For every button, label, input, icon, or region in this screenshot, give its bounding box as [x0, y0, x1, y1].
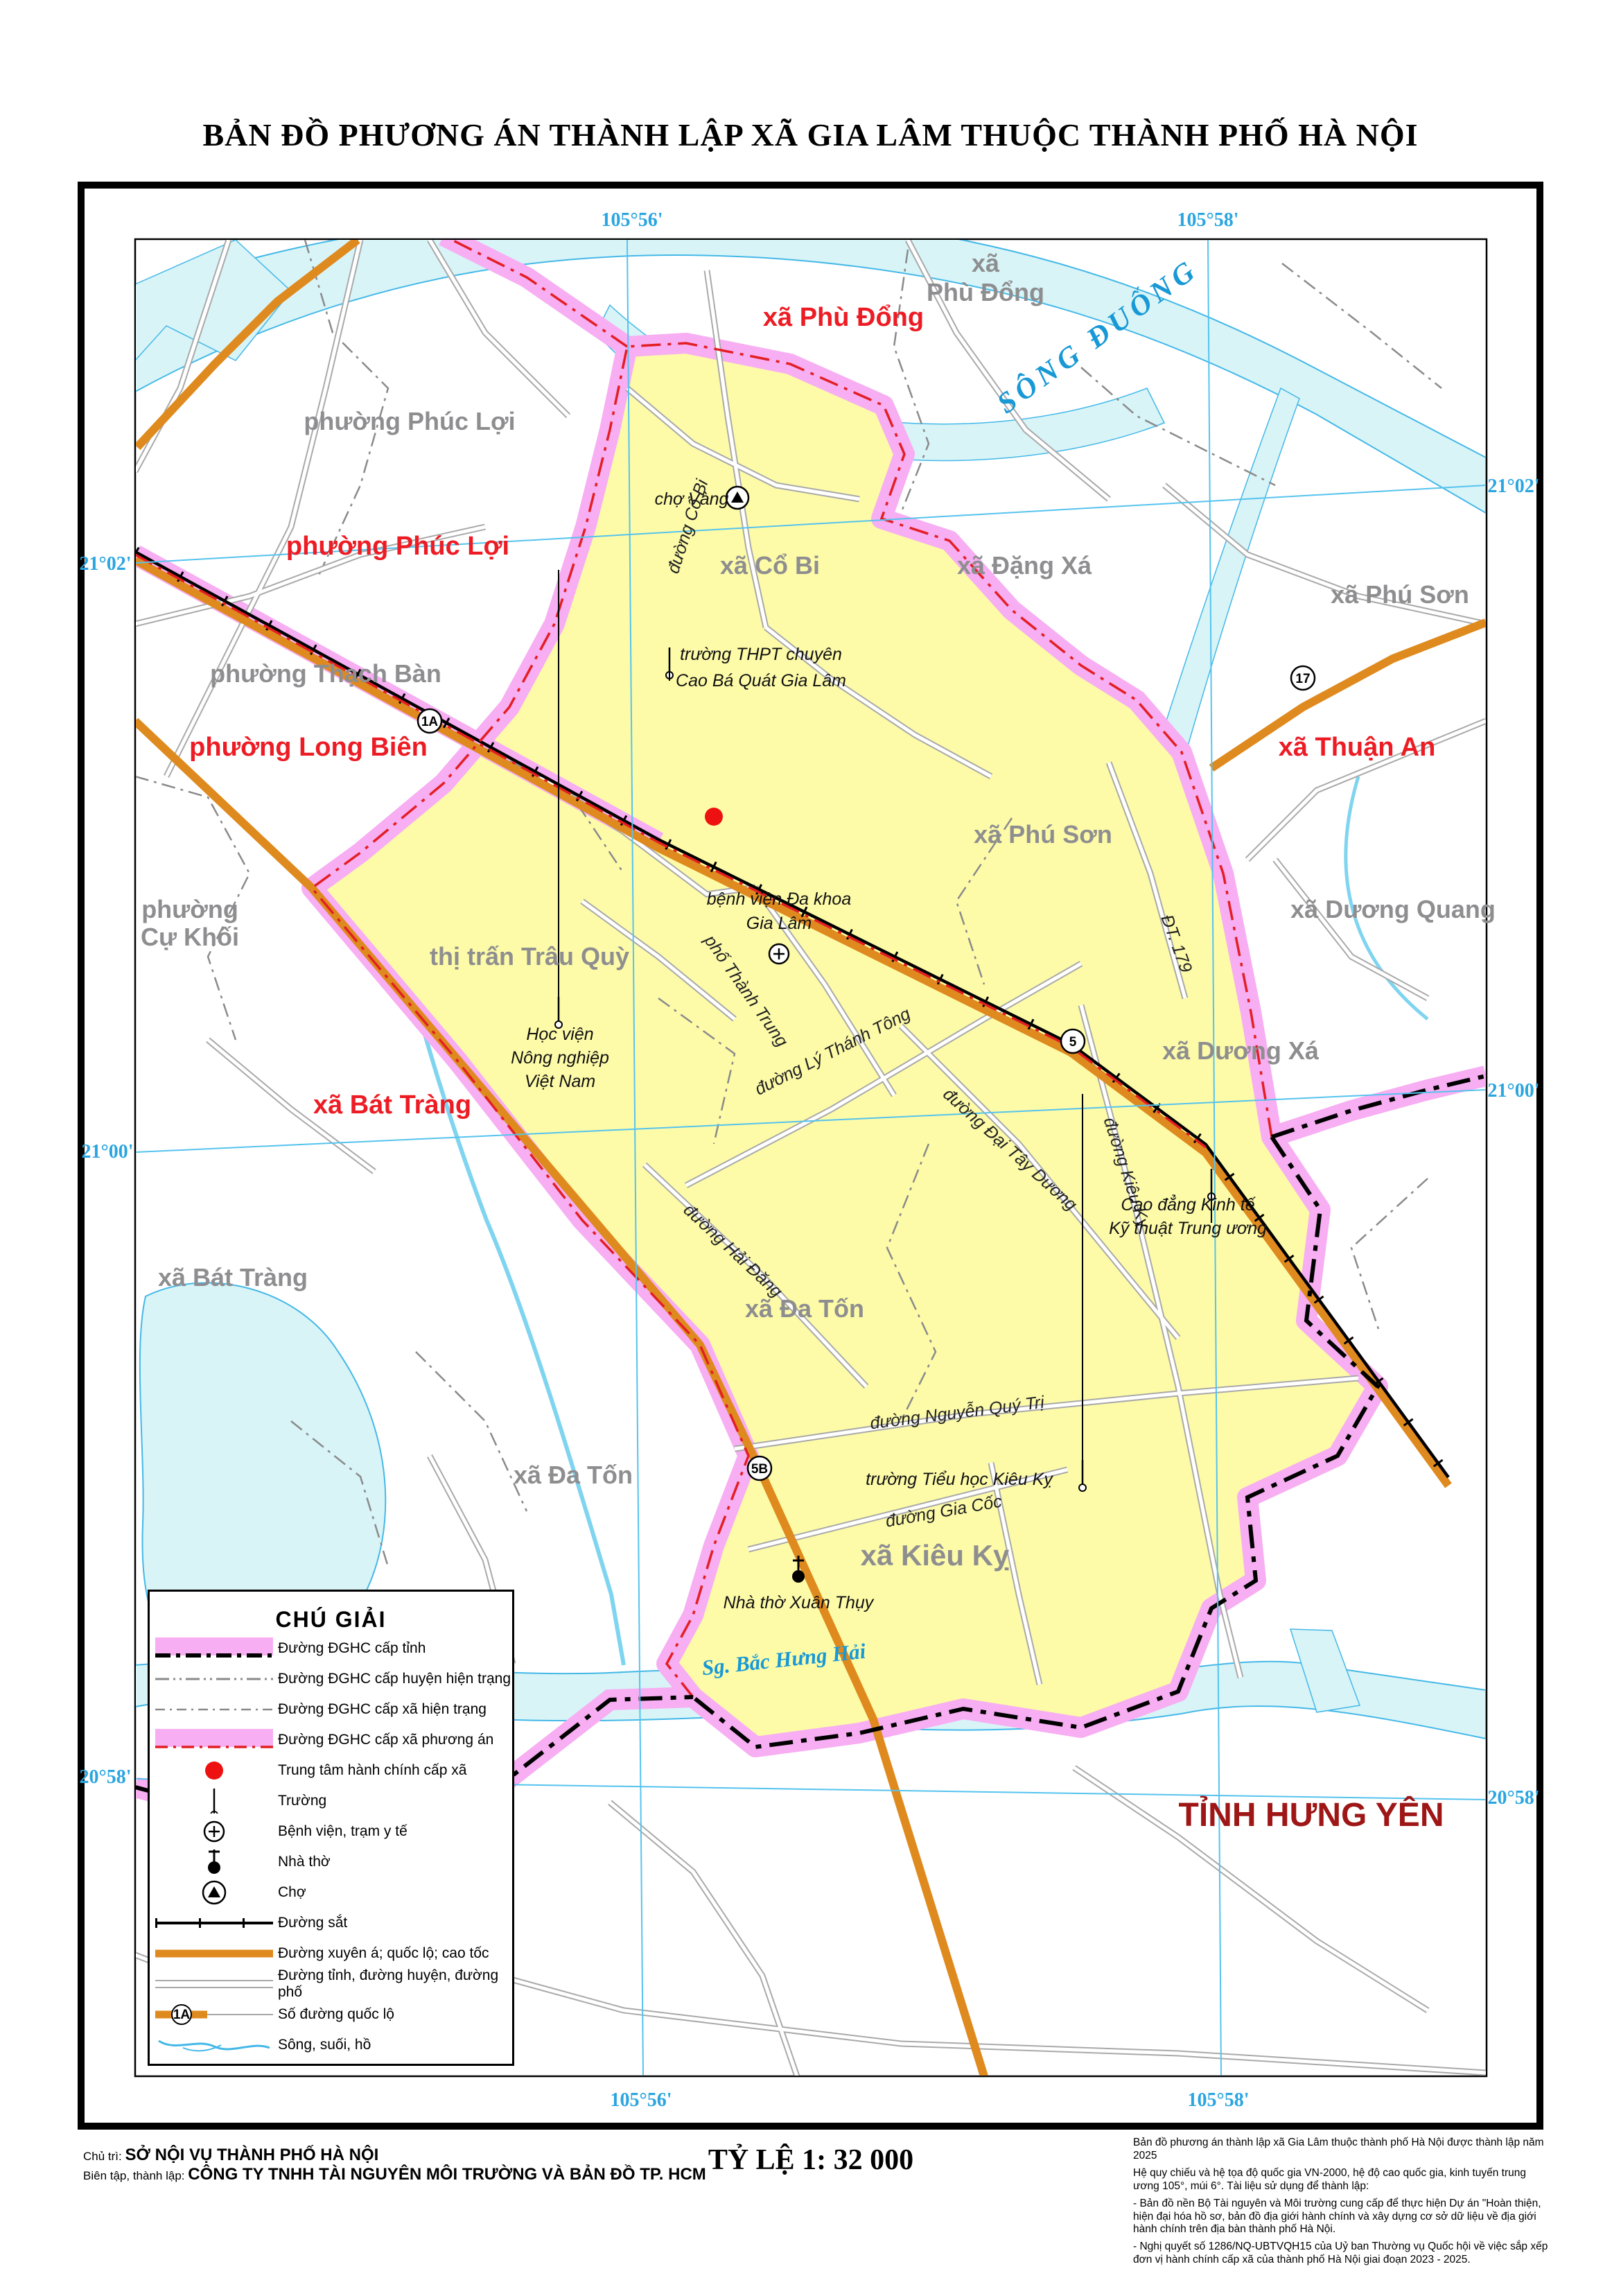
legend-item-song-suoi-ho: Sông, suối, hồ	[150, 2030, 512, 2060]
legend-symbol-railway	[155, 1911, 273, 1936]
map-label-phuong-thach-ban: phường Thạch Bàn	[210, 659, 441, 688]
map-label-phuong-phuc-loi: phường Phúc Lợi	[304, 407, 515, 435]
legend-symbol-school-flag	[155, 1789, 273, 1814]
legend-item-label: Trường	[278, 1793, 326, 1809]
legend-item-label: Đường ĐGHC cấp tỉnh	[278, 1640, 426, 1657]
legend-item-label: Trung tâm hành chính cấp xã	[278, 1762, 466, 1779]
svg-text:1A: 1A	[173, 2008, 190, 2022]
legend-item-so-duong-quoc-lo: 1ASố đường quốc lộ	[150, 2000, 512, 2029]
market-icon	[726, 487, 748, 509]
map-label-xa-co-bi: xã Cổ Bi	[720, 551, 820, 580]
legend-item-label: Bệnh viện, trạm y tế	[278, 1823, 408, 1840]
legend-symbol-route-shield: 1A	[155, 2002, 273, 2027]
map-label-tinh-hung-yen: TỈNH HƯNG YÊN	[1179, 1795, 1444, 1834]
map-label-benh-vien-da-khoa: bệnh viện Đa khoa	[707, 889, 852, 909]
legend-item-benh-vien-tram-y-te: Bệnh viện, trạm y tế	[150, 1817, 512, 1846]
map-label-phuong: phường	[141, 895, 238, 923]
route-shield-1a: 1A	[418, 709, 441, 733]
legend-symbol-market	[155, 1880, 273, 1905]
map-label-ky-thuat-trung-uong: Kỹ thuật Trung ương	[1109, 1219, 1267, 1238]
graticule-label: 20°58'	[1488, 1787, 1540, 1809]
legend-symbol-cell	[150, 1728, 278, 1753]
legend-symbol-cell	[150, 1789, 278, 1814]
map-label-xa-phu-dong: xã Phù Đổng	[763, 303, 924, 332]
legend-item-duong-dghc-cap-tinh: Đường ĐGHC cấp tỉnh	[150, 1634, 512, 1663]
legend-item-trung-tam-hanh-chinh-cap-xa: Trung tâm hành chính cấp xã	[150, 1756, 512, 1785]
legend-item-label: Đường xuyên á; quốc lộ; cao tốc	[278, 1945, 489, 1962]
map-label-cu-khoi: Cự Khối	[141, 923, 239, 951]
route-shield-17: 17	[1291, 666, 1315, 690]
credit-editor-label: Biên tập, thành lập:	[83, 2169, 185, 2182]
legend-item-duong-dghc-cap-xa-hien-trang: Đường ĐGHC cấp xã hiện trạng	[150, 1695, 512, 1724]
legend-symbol-cell: 1A	[150, 2002, 278, 2027]
map-label-xa-kieu-ky: xã Kiêu Kỵ	[861, 1539, 1010, 1572]
map-note-line: Bản đồ phương án thành lập xã Gia Lâm th…	[1133, 2137, 1549, 2163]
map-label-gia-lam: Gia Lâm	[746, 914, 812, 933]
legend-symbol-double-line	[155, 1972, 273, 1997]
credits: Chủ trì: SỞ NỘI VỤ THÀNH PHỐ HÀ NỘI Biên…	[83, 2146, 707, 2184]
map-label-cao-dang-kinh-te: Cao đẳng Kinh tế	[1121, 1194, 1256, 1215]
legend-item-nha-tho: Nhà thờ	[150, 1847, 512, 1877]
graticule-label: 21°00'	[1488, 1080, 1540, 1102]
graticule-label: 21°00'	[82, 1141, 134, 1163]
graticule-label: 21°02'	[80, 553, 132, 575]
legend-box: CHÚ GIẢI Đường ĐGHC cấp tỉnhĐường ĐGHC c…	[148, 1590, 514, 2066]
graticule-label: 105°56'	[611, 2089, 672, 2111]
hospital-icon	[769, 944, 789, 964]
map-label-xa-duong-quang: xã Dương Quang	[1290, 895, 1496, 923]
page-title: BẢN ĐỒ PHƯƠNG ÁN THÀNH LẬP XÃ GIA LÂM TH…	[0, 116, 1621, 153]
legend-symbol-cell	[150, 1880, 278, 1905]
legend-symbol-gray-dash-2dot	[155, 1667, 273, 1691]
legend-symbol-band-black-dashdot	[155, 1636, 273, 1661]
map-label-xa: xã	[972, 249, 1000, 277]
map-label-truong-thpt-chuyen: trường THPT chuyên	[680, 645, 842, 664]
map-notes: Bản đồ phương án thành lập xã Gia Lâm th…	[1133, 2137, 1549, 2271]
legend-symbol-church	[155, 1850, 273, 1875]
legend-symbol-cell	[150, 1758, 278, 1783]
legend-item-duong-xuyen-a-quoc-lo-cao-toc: Đường xuyên á; quốc lộ; cao tốc	[150, 1939, 512, 1968]
legend-symbol-cell	[150, 1636, 278, 1661]
graticule-label: 105°56'	[602, 209, 663, 231]
legend-item-label: Đường ĐGHC cấp xã phương án	[278, 1732, 493, 1748]
legend-symbol-cell	[150, 1819, 278, 1844]
map-label-viet-nam: Việt Nam	[525, 1072, 595, 1091]
legend-item-duong-dghc-cap-huyen-hien-trang: Đường ĐGHC cấp huyện hiện trạng	[150, 1664, 512, 1694]
map-label-xa-dang-xa: xã Đặng Xá	[957, 551, 1092, 580]
map-label-xa-da-ton: xã Đa Tốn	[514, 1461, 633, 1489]
map-page: 1A5175B xã Phù ĐổngxãPhù ĐổngSÔNG ĐUỐNGp…	[0, 0, 1621, 2293]
legend-symbol-orange-road	[155, 1941, 273, 1966]
legend-symbol-cell	[150, 1972, 278, 1997]
credit-role-label: Chủ trì:	[83, 2150, 122, 2163]
graticule-label: 20°58'	[80, 1766, 132, 1788]
credit-agency: SỞ NỘI VỤ THÀNH PHỐ HÀ NỘI	[125, 2146, 378, 2164]
legend-title: CHÚ GIẢI	[150, 1607, 512, 1633]
legend-item-label: Chợ	[278, 1884, 306, 1901]
map-label-nha-tho-xuan-thuy: Nhà thờ Xuân Thụy	[724, 1593, 875, 1612]
map-label-phu-dong: Phù Đổng	[927, 278, 1044, 306]
legend-item-duong-dghc-cap-xa-phuong-an: Đường ĐGHC cấp xã phương án	[150, 1725, 512, 1755]
legend-item-label: Sông, suối, hồ	[278, 2037, 371, 2053]
map-note-line: - Nghị quyết số 1286/NQ-UBTVQH15 của Uỷ …	[1133, 2241, 1549, 2267]
graticule-label: 105°58'	[1188, 2089, 1250, 2111]
legend-symbol-cell	[150, 2033, 278, 2058]
map-label-thi-tran-trau-quy: thị trấn Trâu Quỳ	[430, 942, 629, 971]
route-shield-5: 5	[1061, 1029, 1085, 1053]
svg-text:17: 17	[1295, 672, 1310, 686]
map-label-xa-duong-xa: xã Dương Xá	[1162, 1036, 1320, 1065]
svg-text:5B: 5B	[751, 1462, 768, 1477]
legend-symbol-hospital	[155, 1819, 273, 1844]
legend-symbol-cell	[150, 1667, 278, 1691]
map-label-cao-ba-quat-gia-lam: Cao Bá Quát Gia Lâm	[676, 671, 846, 690]
legend-item-truong: Trường	[150, 1786, 512, 1816]
map-label-xa-da-ton: xã Đa Tốn	[745, 1294, 864, 1323]
legend-symbol-gray-dashdot	[155, 1697, 273, 1722]
svg-text:1A: 1A	[421, 715, 439, 729]
map-label-xa-phu-son: xã Phú Sơn	[974, 820, 1112, 849]
legend-symbol-cell	[150, 1941, 278, 1966]
map-note-line: Hệ quy chiếu và hệ tọa độ quốc gia VN-20…	[1133, 2167, 1549, 2193]
legend-symbol-band-red-dashdot	[155, 1728, 273, 1753]
map-label-xa-bat-trang: xã Bát Tràng	[313, 1090, 471, 1120]
graticule-label: 21°02'	[1488, 476, 1540, 497]
map-note-line: - Bản đồ nền Bộ Tài nguyên và Môi trường…	[1133, 2198, 1549, 2237]
legend-symbol-cell	[150, 1850, 278, 1875]
legend-item-label: Đường tỉnh, đường huyện, đường phố	[278, 1967, 512, 2001]
legend-item-label: Đường ĐGHC cấp huyện hiện trạng	[278, 1671, 511, 1687]
map-label-xa-thuan-an: xã Thuận An	[1279, 733, 1436, 762]
legend-item-label: Đường sắt	[278, 1915, 347, 1931]
legend-item-label: Nhà thờ	[278, 1854, 331, 1870]
route-shield-5b: 5B	[748, 1456, 771, 1480]
legend-symbol-cell	[150, 1911, 278, 1936]
graticule-label: 105°58'	[1177, 209, 1239, 231]
legend-symbol-river	[155, 2033, 273, 2058]
map-label-xa-bat-trang: xã Bát Tràng	[158, 1263, 308, 1291]
legend-symbol-red-dot	[155, 1758, 273, 1783]
legend-item-duong-tinh-duong-huyen-duong-pho: Đường tỉnh, đường huyện, đường phố	[150, 1969, 512, 1999]
legend-symbol-cell	[150, 1697, 278, 1722]
map-label-hoc-vien: Học viện	[526, 1025, 593, 1044]
map-label-phuong-phuc-loi: phường Phúc Lợi	[286, 532, 509, 561]
admin-center-icon	[705, 808, 723, 826]
legend-item-label: Đường ĐGHC cấp xã hiện trạng	[278, 1701, 487, 1718]
map-label-truong-tieu-hoc-kieu-ky: trường Tiểu học Kiêu Kỵ	[866, 1470, 1053, 1489]
map-label-xa-phu-son: xã Phú Sơn	[1331, 580, 1469, 609]
map-scale: TỶ LỆ 1: 32 000	[624, 2143, 998, 2177]
legend-item-cho: Chợ	[150, 1878, 512, 1907]
svg-text:5: 5	[1069, 1035, 1077, 1050]
legend-item-duong-sat: Đường sắt	[150, 1908, 512, 1938]
map-label-phuong-long-bien: phường Long Biên	[189, 733, 428, 762]
map-label-nong-nghiep: Nông nghiệp	[511, 1048, 609, 1068]
legend-item-label: Số đường quốc lộ	[278, 2006, 394, 2023]
